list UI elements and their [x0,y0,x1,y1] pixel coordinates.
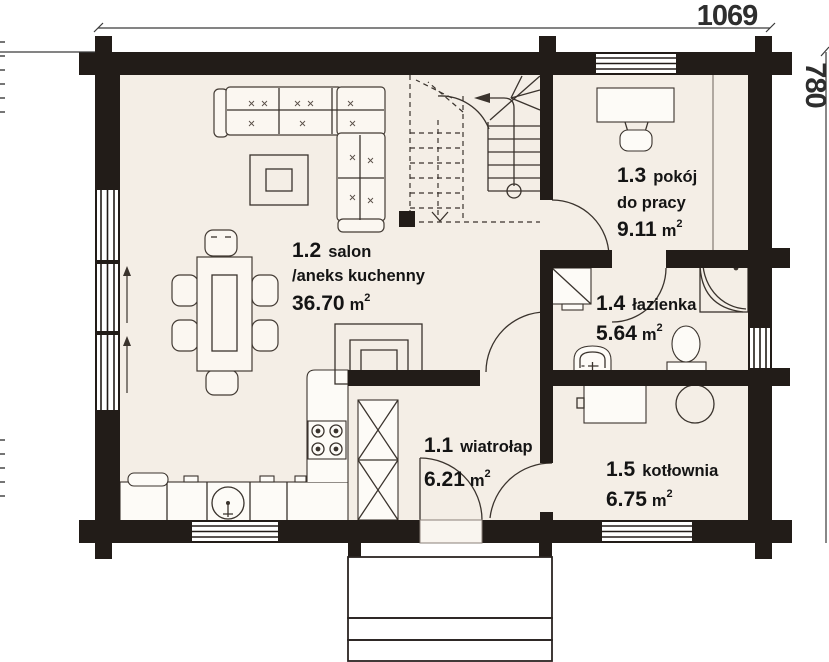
porch-post-left [348,543,361,557]
chimney-shaft-icon [358,400,398,520]
window-bathroom [750,328,770,368]
wall-bathroom-top-right [666,250,748,268]
floor-plan-drawing: 1069 780 1.2salon /aneks kuchenny 36.70m… [0,0,829,662]
window-boiler-room [602,522,692,541]
washbasin-icon [574,346,611,372]
svg-text:6.75m2: 6.75m2 [606,488,673,511]
wall-stairs-room13 [540,75,553,200]
wall-bathroom-top-left [552,250,612,268]
svg-text:1.3pokój: 1.3pokój [617,164,697,187]
desk-chair-icon [620,130,652,151]
floor-plan-screenshot: 1069 780 1.2salon /aneks kuchenny 36.70m… [0,0,829,662]
svg-text:1.2salon: 1.2salon [292,239,371,262]
svg-text:1.1wiatrołap: 1.1wiatrołap [424,434,533,457]
svg-text:5.64m2: 5.64m2 [596,322,663,345]
countertop-appliance-icon [128,473,168,486]
window-top [596,54,676,73]
svg-text:36.70m2: 36.70m2 [292,292,370,315]
window-left [97,190,118,410]
svg-text:1.4łazienka: 1.4łazienka [596,292,697,315]
vent-shaft-icon [552,268,591,310]
wall-fireplace [348,370,480,386]
svg-text:9.11m2: 9.11m2 [617,218,683,241]
dimension-width-label: 1069 [697,0,758,32]
stove-icon [308,421,346,459]
dimension-height-label: 780 [799,62,829,107]
stair-post [399,211,415,227]
entry-threshold [420,520,482,543]
porch-post-right [539,543,552,557]
entry-steps-icon [348,557,552,661]
svg-text:1.5kotłownia: 1.5kotłownia [606,458,719,481]
svg-text:6.21m2: 6.21m2 [424,468,491,491]
wall-bathroom-bottom [546,370,748,386]
wall-bathroom-left [540,250,553,463]
svg-text:do pracy: do pracy [617,194,687,212]
window-kitchen [192,522,278,541]
edge-tick-marks [0,42,5,496]
svg-text:/aneks kuchenny: /aneks kuchenny [292,267,426,285]
